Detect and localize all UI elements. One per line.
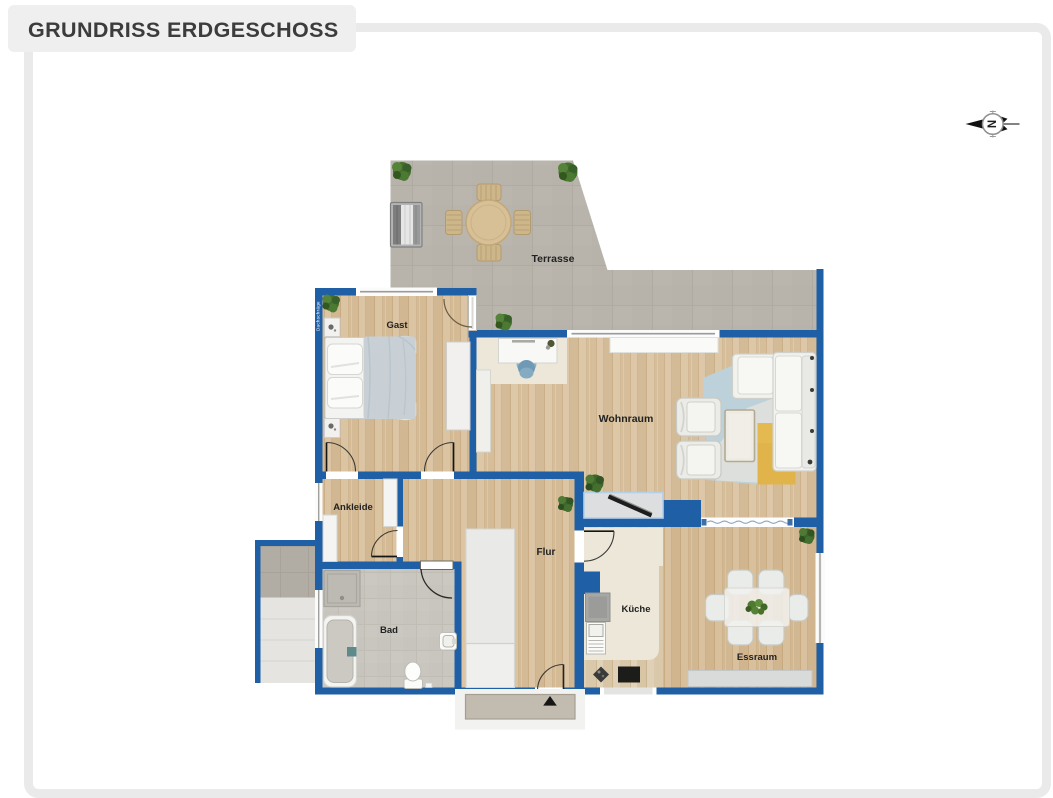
svg-text:GRUNDRISS ERDGESCHOSS: GRUNDRISS ERDGESCHOSS bbox=[28, 18, 339, 42]
svg-text:Küche: Küche bbox=[621, 604, 650, 615]
svg-text:Essraum: Essraum bbox=[737, 652, 777, 663]
svg-text:Gast: Gast bbox=[386, 320, 408, 331]
svg-text:Ankleide: Ankleide bbox=[333, 502, 373, 513]
svg-text:Terrasse: Terrasse bbox=[531, 253, 574, 265]
svg-text:Dachschräge: Dachschräge bbox=[316, 301, 321, 331]
svg-text:Bad: Bad bbox=[380, 625, 398, 636]
svg-text:Flur: Flur bbox=[537, 547, 556, 558]
svg-text:Wohnraum: Wohnraum bbox=[599, 413, 654, 425]
svg-text:N: N bbox=[987, 120, 999, 128]
